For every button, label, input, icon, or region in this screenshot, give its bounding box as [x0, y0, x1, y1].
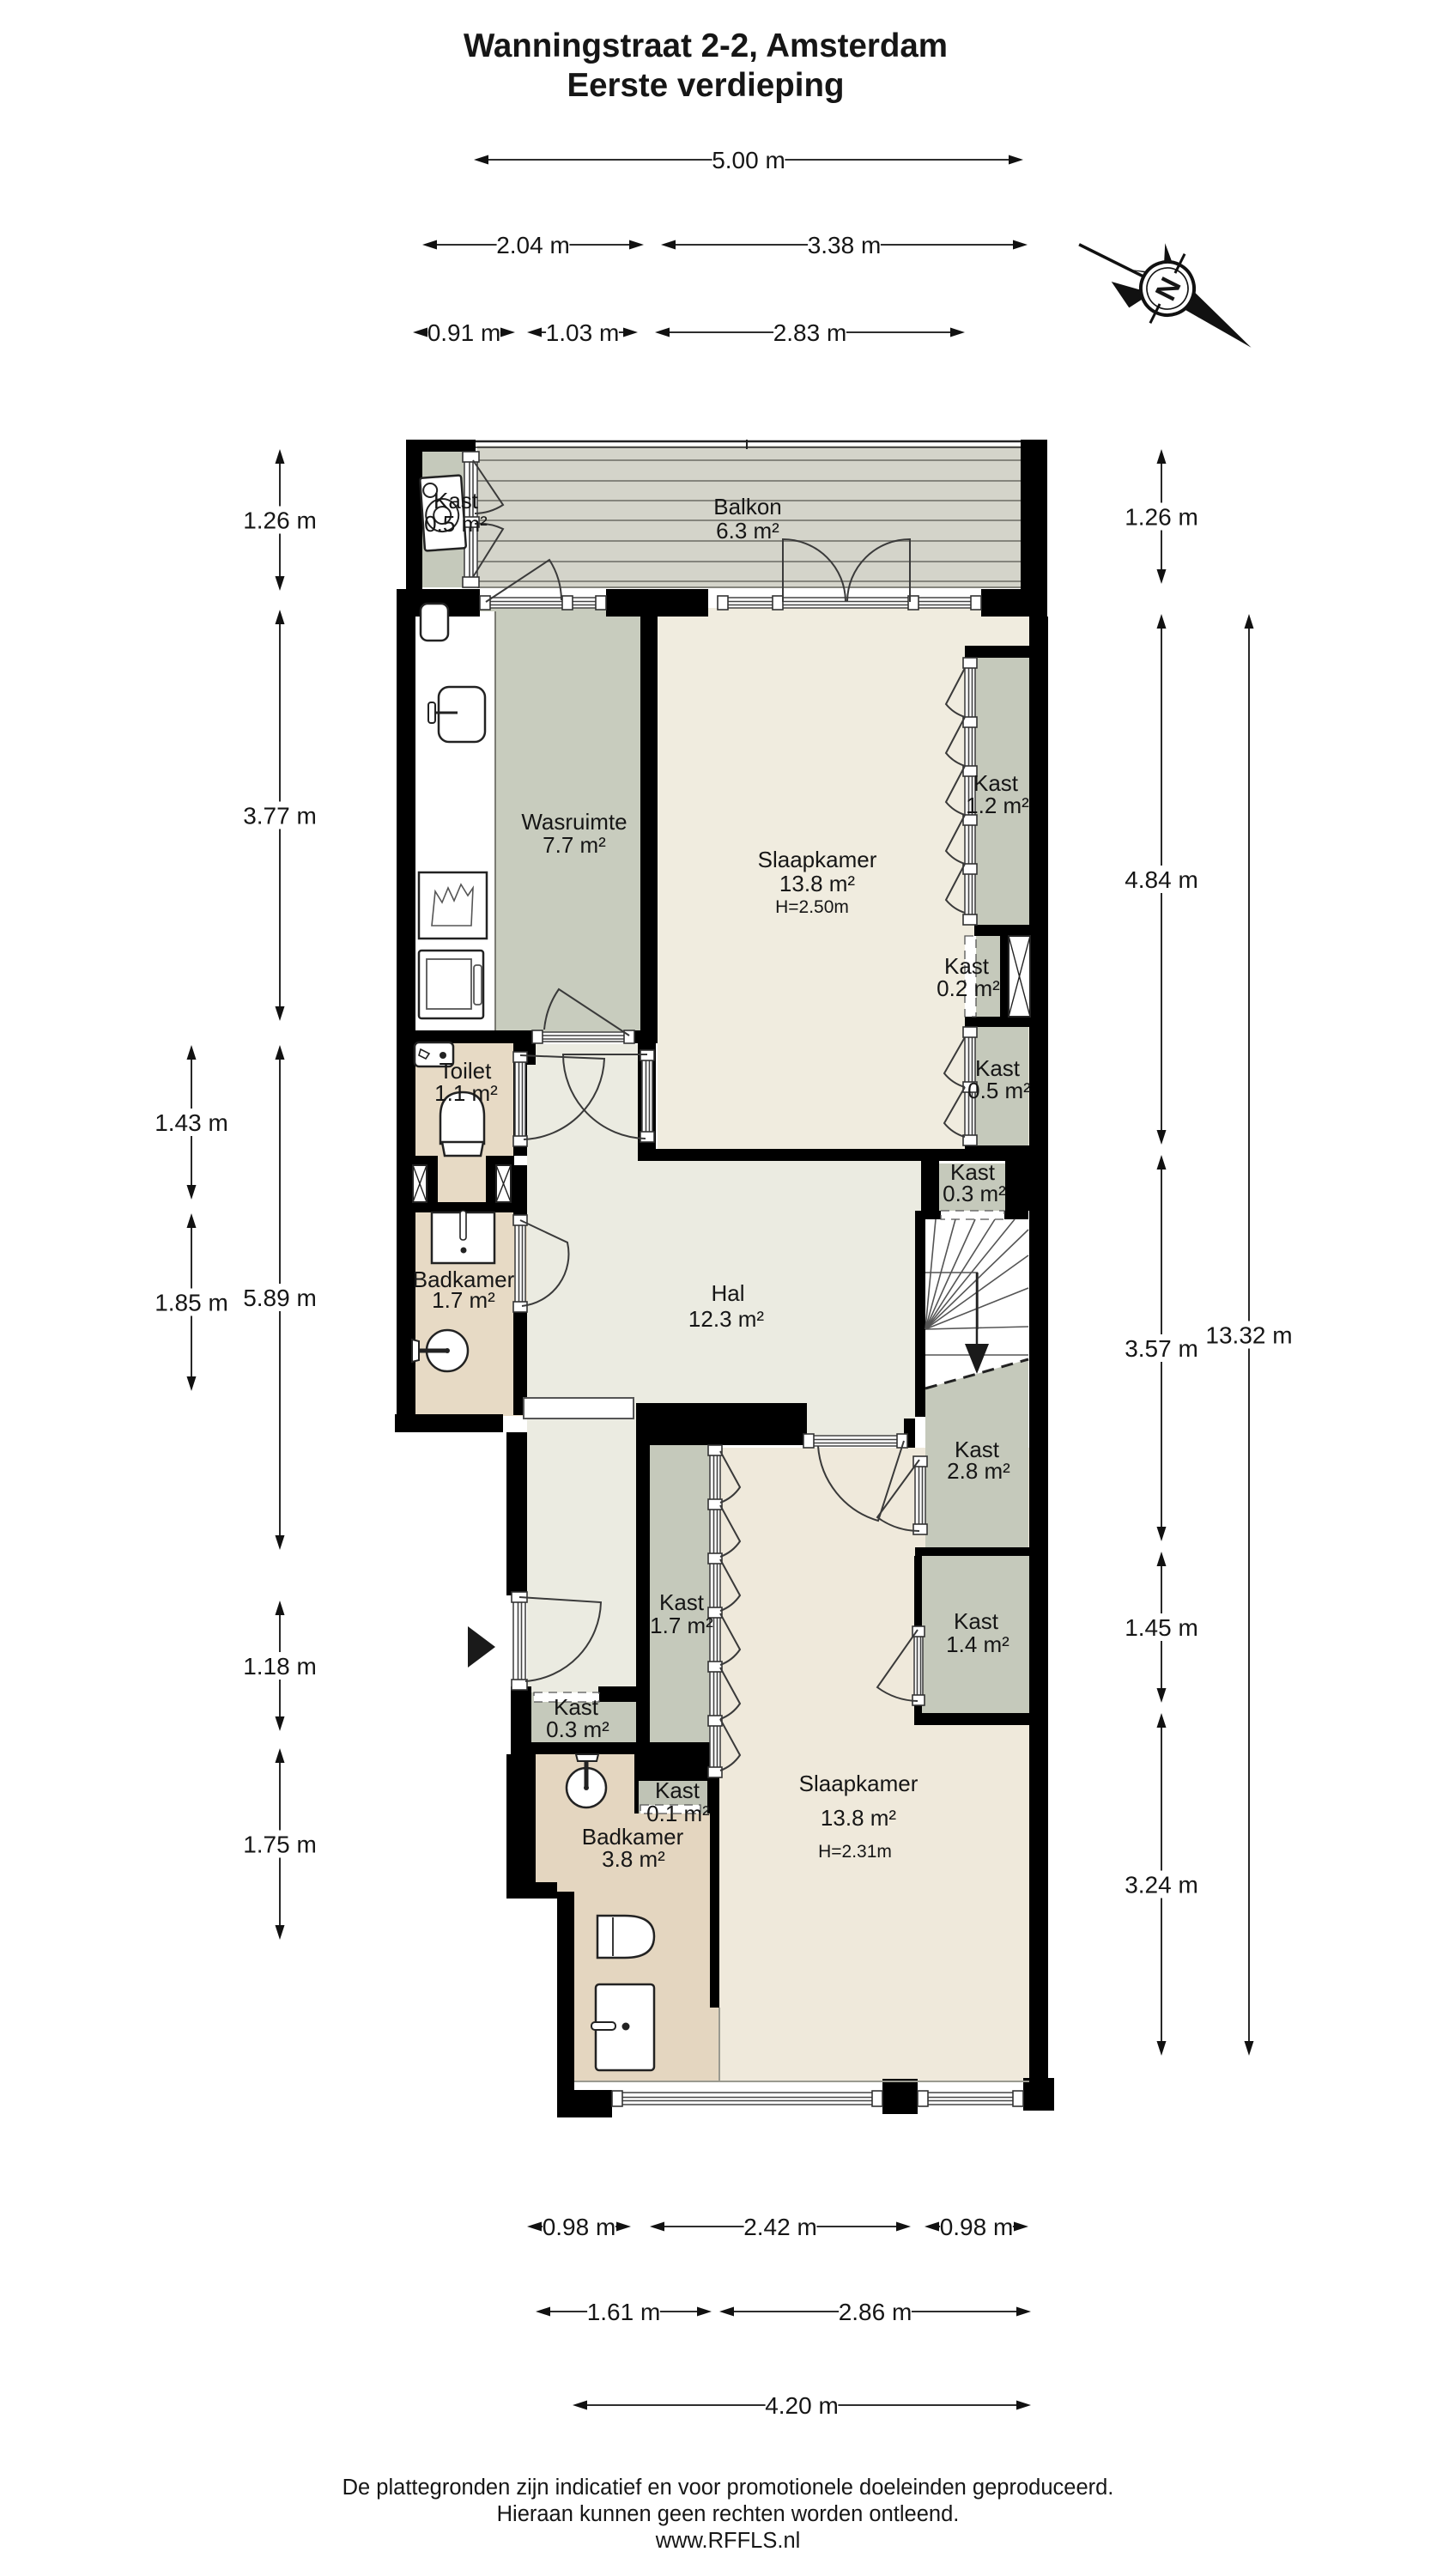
svg-text:3.77 m: 3.77 m	[243, 803, 317, 829]
svg-text:1.45 m: 1.45 m	[1125, 1614, 1198, 1641]
svg-text:Kast: Kast	[659, 1589, 705, 1615]
svg-text:H=2.50m: H=2.50m	[775, 897, 849, 917]
svg-text:2.83 m: 2.83 m	[773, 319, 847, 346]
svg-text:13.8 m²: 13.8 m²	[821, 1805, 896, 1831]
svg-text:1.26 m: 1.26 m	[1125, 504, 1198, 531]
svg-text:Kast: Kast	[433, 488, 479, 513]
svg-text:0.98 m: 0.98 m	[940, 2214, 1014, 2240]
svg-text:4.20 m: 4.20 m	[765, 2392, 839, 2419]
svg-text:0.3 m²: 0.3 m²	[546, 1716, 609, 1742]
svg-text:2.04 m: 2.04 m	[496, 232, 570, 258]
svg-text:5.89 m: 5.89 m	[243, 1285, 317, 1311]
svg-text:0.5 m²: 0.5 m²	[424, 511, 488, 537]
svg-text:1.7 m²: 1.7 m²	[650, 1613, 713, 1638]
svg-text:1.85 m: 1.85 m	[155, 1290, 228, 1316]
svg-text:3.24 m: 3.24 m	[1125, 1872, 1198, 1899]
svg-text:Wanningstraat 2-2, Amsterdam: Wanningstraat 2-2, Amsterdam	[464, 27, 948, 64]
svg-text:Wasruimte: Wasruimte	[521, 809, 627, 835]
svg-text:2.42 m: 2.42 m	[743, 2214, 817, 2240]
svg-text:13.8 m²: 13.8 m²	[779, 871, 855, 896]
svg-text:3.8 m²: 3.8 m²	[602, 1846, 665, 1872]
svg-text:1.26 m: 1.26 m	[243, 507, 317, 534]
svg-text:2.8 m²: 2.8 m²	[947, 1458, 1010, 1484]
svg-text:0.98 m: 0.98 m	[543, 2214, 616, 2240]
svg-text:3.57 m: 3.57 m	[1125, 1335, 1198, 1362]
svg-text:0.3 m²: 0.3 m²	[943, 1181, 1006, 1206]
svg-text:Balkon: Balkon	[713, 494, 782, 519]
svg-text:Kast: Kast	[954, 1608, 999, 1634]
svg-text:Slaapkamer: Slaapkamer	[799, 1771, 919, 1796]
svg-text:6.3 m²: 6.3 m²	[716, 518, 779, 544]
svg-text:1.61 m: 1.61 m	[587, 2299, 661, 2325]
svg-text:13.32 m: 13.32 m	[1205, 1322, 1292, 1349]
svg-text:0.1 m²: 0.1 m²	[646, 1801, 710, 1826]
svg-text:4.84 m: 4.84 m	[1125, 866, 1198, 893]
svg-text:3.38 m: 3.38 m	[808, 232, 882, 258]
svg-text:1.03 m: 1.03 m	[546, 319, 620, 346]
svg-text:www.RFFLS.nl: www.RFFLS.nl	[655, 2529, 801, 2553]
svg-text:5.00 m: 5.00 m	[712, 147, 785, 173]
svg-text:Slaapkamer: Slaapkamer	[758, 847, 877, 872]
svg-text:2.86 m: 2.86 m	[839, 2299, 912, 2325]
svg-text:Kast: Kast	[655, 1777, 700, 1803]
svg-text:Eerste verdieping: Eerste verdieping	[567, 67, 844, 104]
svg-text:0.5 m²: 0.5 m²	[967, 1078, 1031, 1103]
svg-text:1.4 m²: 1.4 m²	[946, 1631, 1009, 1657]
svg-text:H=2.31m: H=2.31m	[818, 1842, 892, 1862]
svg-text:Hal: Hal	[711, 1280, 744, 1306]
svg-text:Hieraan kunnen geen rechten wo: Hieraan kunnen geen rechten worden ontle…	[497, 2502, 960, 2526]
svg-text:0.2 m²: 0.2 m²	[937, 975, 1000, 1001]
svg-text:1.18 m: 1.18 m	[243, 1653, 317, 1680]
svg-text:1.2 m²: 1.2 m²	[966, 793, 1029, 818]
svg-text:7.7 m²: 7.7 m²	[543, 832, 606, 858]
svg-text:De plattegronden zijn indicati: De plattegronden zijn indicatief en voor…	[343, 2476, 1114, 2500]
svg-text:12.3 m²: 12.3 m²	[688, 1306, 764, 1332]
svg-text:1.75 m: 1.75 m	[243, 1832, 317, 1858]
svg-text:1.7 m²: 1.7 m²	[432, 1287, 495, 1313]
svg-text:1.43 m: 1.43 m	[155, 1109, 228, 1136]
svg-text:1.1 m²: 1.1 m²	[434, 1080, 498, 1106]
svg-text:0.91 m: 0.91 m	[427, 319, 501, 346]
